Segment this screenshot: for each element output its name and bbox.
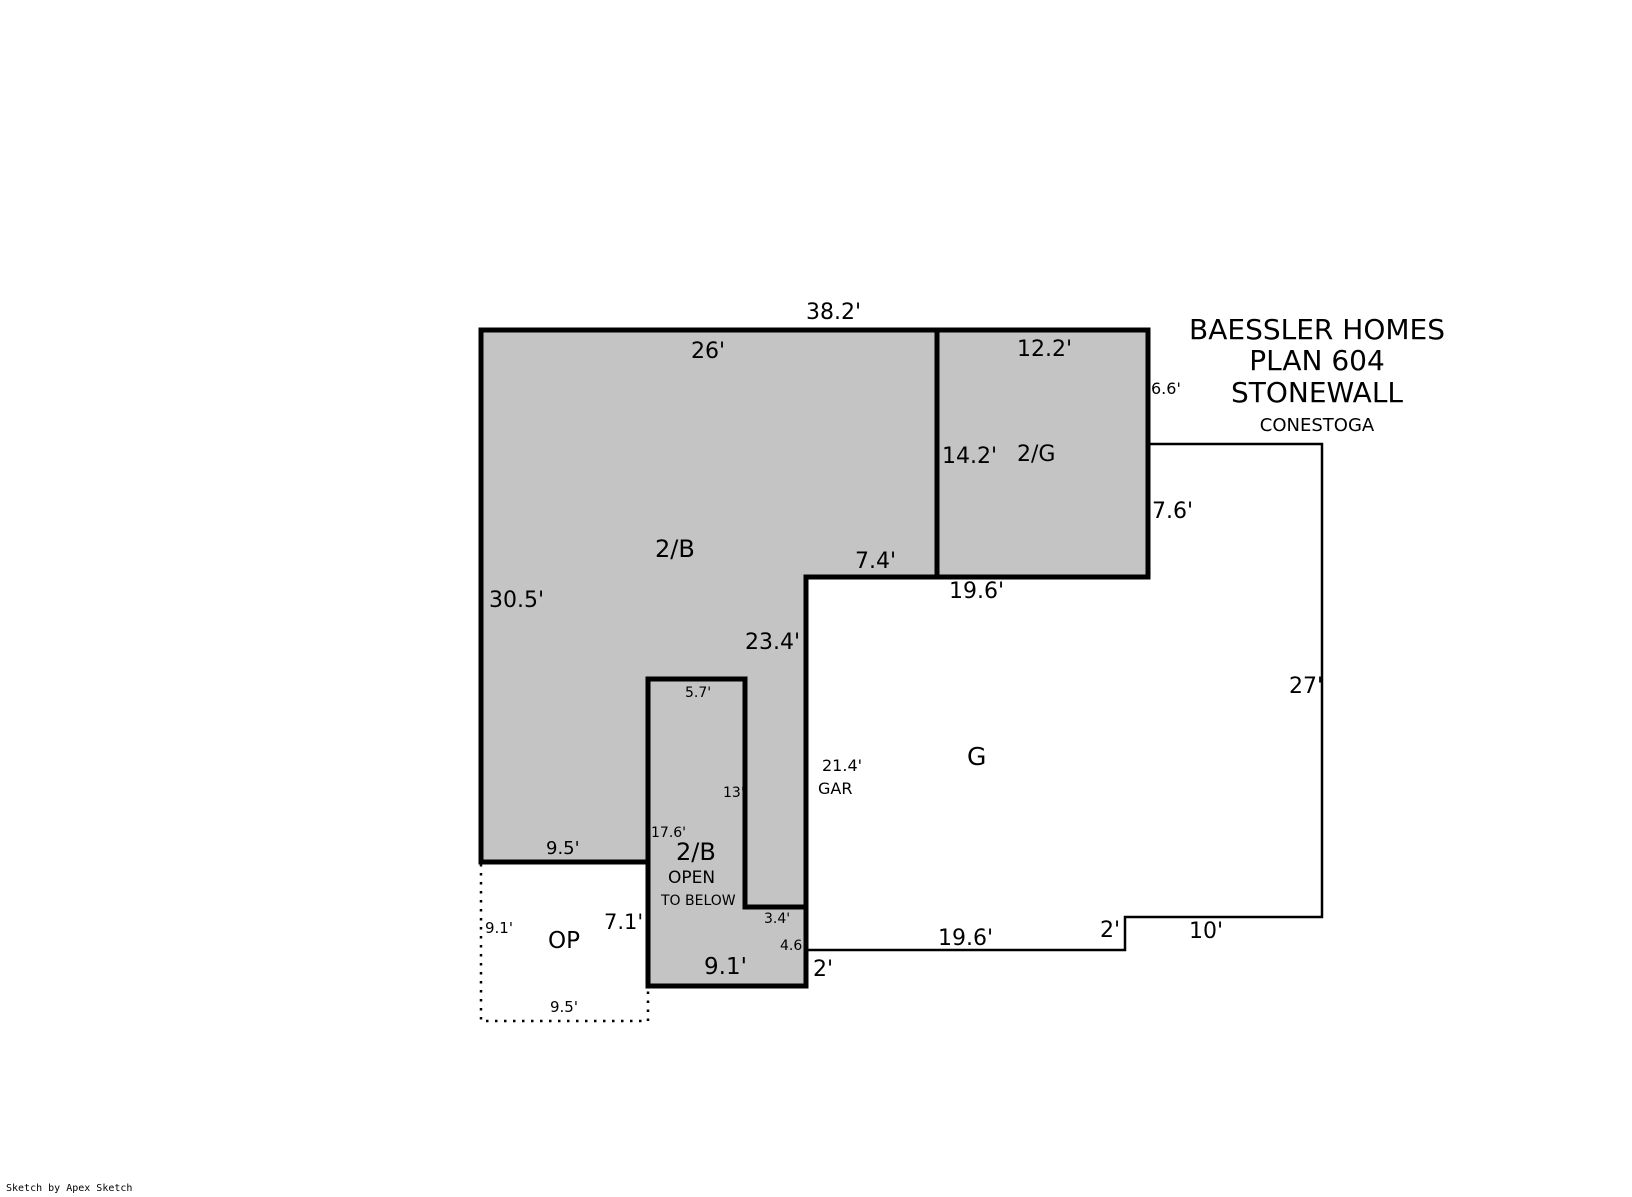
dim-top-width: 38.2' <box>806 301 861 325</box>
dim-garage-left-height: 23.4' <box>745 631 800 655</box>
dim-block-bottom-width: 9.1' <box>704 955 747 980</box>
dim-upper-2b-width: 26' <box>691 340 725 364</box>
dim-garage-top-width: 19.6' <box>949 580 1004 604</box>
room-label-2b-lower: 2/B <box>676 839 716 865</box>
dim-step-4-6: 4.6' <box>780 939 806 954</box>
dim-garage-interior-height: 21.4' <box>822 757 862 775</box>
model-name: CONESTOGA <box>1156 415 1478 436</box>
dim-right-height: 27' <box>1289 675 1323 699</box>
watermark: Sketch by Apex Sketch <box>6 1183 132 1194</box>
dim-step-3-4: 3.4' <box>764 912 790 927</box>
dim-shaft-height: 13' <box>723 786 745 801</box>
room-label-2g: 2/G <box>1017 443 1055 467</box>
dim-upper-2g-width: 12.2' <box>1017 338 1072 362</box>
dim-porch-bottom-width: 9.5' <box>550 999 578 1016</box>
dim-offset-2-right: 2' <box>1100 919 1120 943</box>
dim-shaft-width: 5.7' <box>685 686 711 701</box>
dim-right-7-6: 7.6' <box>1152 500 1193 524</box>
open-label: OPEN <box>668 869 715 888</box>
dim-block-left-height: 7.1' <box>604 911 643 934</box>
garage-letter-label: G <box>967 743 986 771</box>
dim-porch-left-height: 9.1' <box>485 920 513 937</box>
floor-plan-canvas: 38.2' 26' 12.2' 6.6' 14.2' 2/G 7.6' 2/B … <box>0 0 1632 1197</box>
floor-plan-drawing <box>0 0 1632 1197</box>
dim-bottom-9-5: 9.5' <box>546 839 580 859</box>
dim-garage-bottom-width: 19.6' <box>938 927 993 951</box>
dim-bottom-right-width: 10' <box>1189 920 1223 944</box>
plan-number: PLAN 604 <box>1156 345 1478 376</box>
room-label-2b-upper: 2/B <box>655 536 695 562</box>
dim-2g-height: 14.2' <box>942 445 997 469</box>
title-block: BAESSLER HOMES PLAN 604 STONEWALL CONEST… <box>1156 314 1478 436</box>
gar-label: GAR <box>818 780 852 798</box>
plan-name: STONEWALL <box>1156 377 1478 408</box>
porch-label: OP <box>548 929 580 954</box>
builder-name: BAESSLER HOMES <box>1156 314 1478 345</box>
shaded-area-outline <box>481 330 1148 986</box>
dim-offset-2-left: 2' <box>813 958 833 982</box>
to-below-label: TO BELOW <box>661 894 736 909</box>
dim-left-height: 30.5' <box>489 589 544 613</box>
dim-step-7-4: 7.4' <box>855 550 896 574</box>
